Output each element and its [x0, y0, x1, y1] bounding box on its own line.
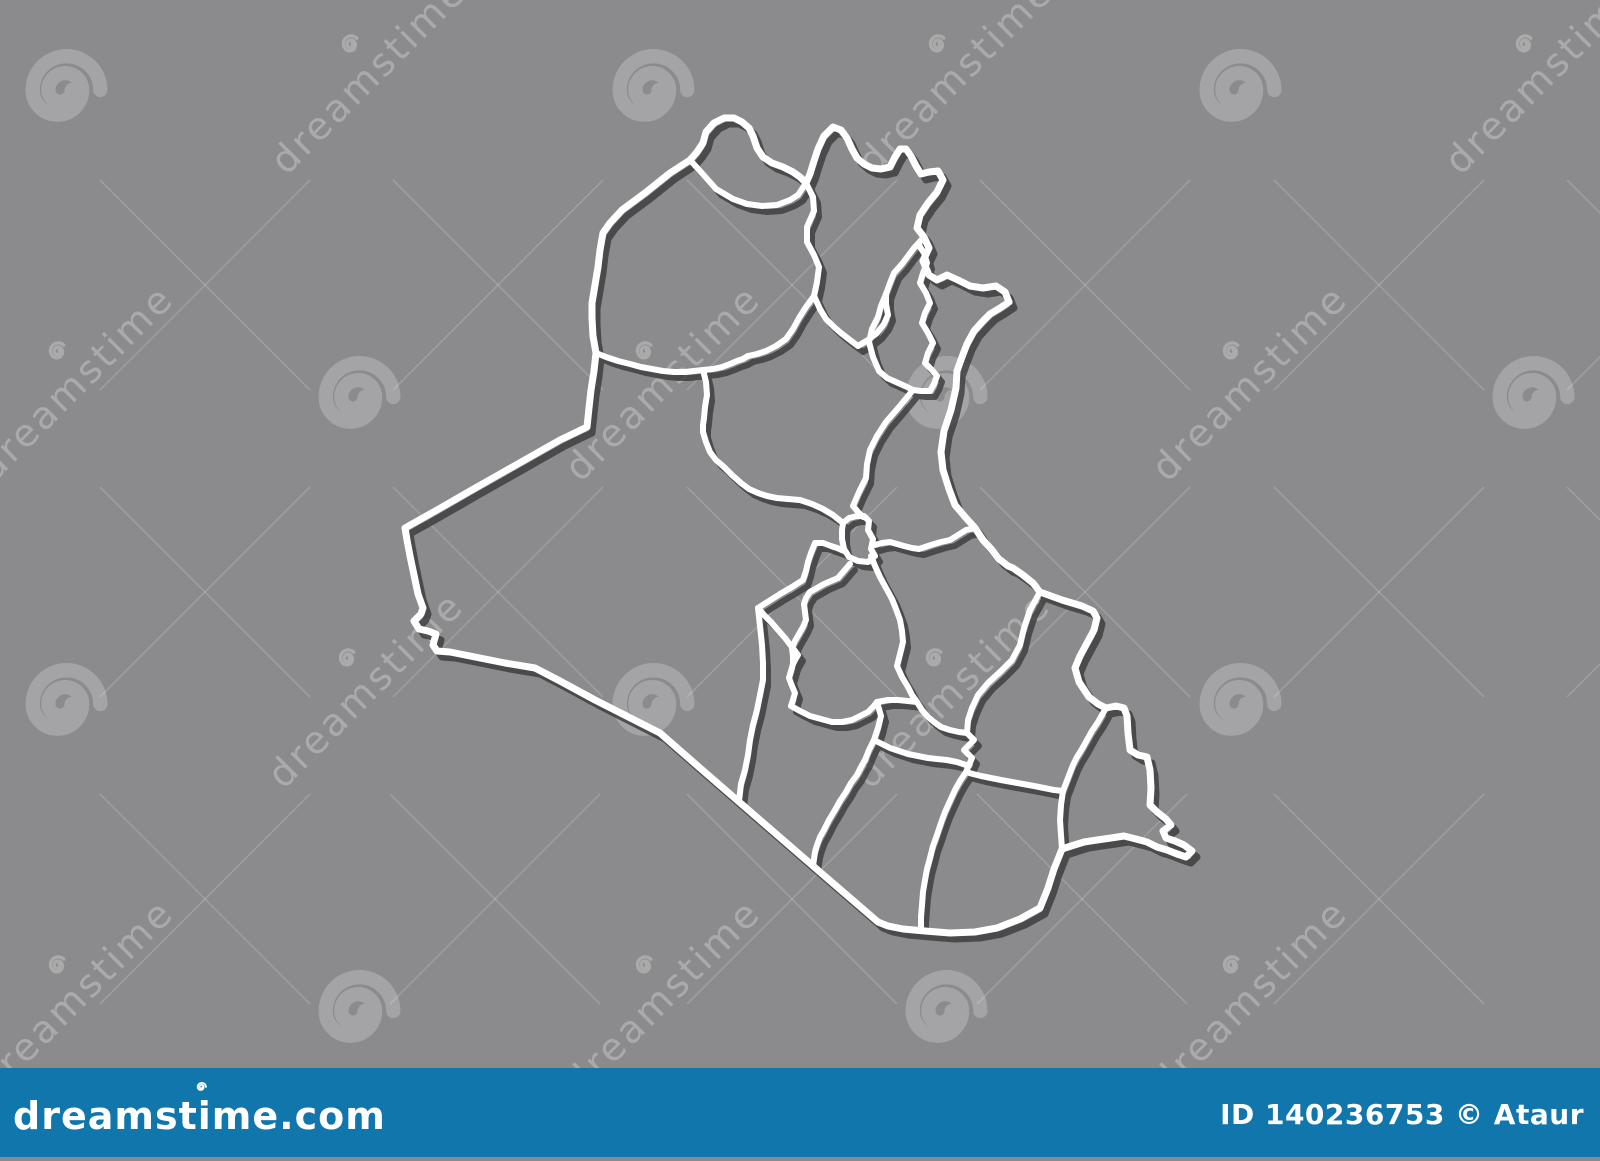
watermark-small-spiral-icon [1221, 340, 1242, 361]
logo-spiral-icon [188, 1074, 214, 1100]
svg-text:dreamstime: dreamstime [556, 276, 770, 490]
watermark-text: dreamstime [1128, 261, 1356, 489]
watermark-text: dreamstime [247, 0, 475, 183]
iraq-map-outline [405, 118, 1192, 933]
watermark-small-spiral-icon [337, 647, 358, 668]
watermark-spiral-icon [326, 363, 394, 422]
watermark-small-spiral-icon [1514, 33, 1535, 54]
watermark-line [1567, 180, 1600, 390]
watermark-line [1567, 487, 1600, 697]
watermark-small-spiral-icon [1221, 954, 1242, 975]
footer-bar: dreamstime.com ID 140236753 © Ataur [0, 1068, 1600, 1157]
svg-text:dreamstime: dreamstime [0, 276, 183, 490]
svg-text:dreamstime: dreamstime [259, 583, 473, 797]
scene-svg: dreamstimedreamstimedreamstimedreamstime… [0, 0, 1600, 1157]
watermark-text: dreamstime [244, 568, 472, 796]
watermark-small-spiral-icon [924, 647, 945, 668]
watermark-spiral-icon [1207, 56, 1275, 114]
watermark-spiral-icon [1500, 363, 1568, 422]
watermark-small-spiral-icon [47, 340, 68, 361]
watermark-small-spiral-icon [634, 340, 655, 361]
svg-text:dreamstime: dreamstime [1143, 276, 1357, 490]
watermark-text: dreamstime [834, 0, 1062, 183]
watermark-spiral-icon [326, 977, 394, 1035]
svg-text:dreamstime: dreamstime [849, 0, 1063, 183]
watermark-small-spiral-icon [47, 954, 68, 975]
dreamstime-logo: dreamstime.com [13, 1094, 386, 1138]
watermark-spiral-icon [620, 56, 688, 114]
watermark-spiral-icon [33, 56, 101, 114]
watermark-line [1567, 180, 1600, 390]
watermark-spiral-icon [33, 670, 101, 729]
watermark-small-spiral-icon [340, 33, 361, 54]
watermark-line [1567, 487, 1600, 697]
watermark-small-spiral-icon [927, 33, 948, 54]
watermark-text: dreamstime [0, 261, 183, 489]
svg-text:dreamstime: dreamstime [262, 0, 476, 183]
watermark-text: dreamstime [1421, 0, 1600, 183]
svg-text:dreamstime: dreamstime [1436, 0, 1600, 183]
image-credit: ID 140236753 © Ataur [1220, 1098, 1584, 1131]
watermark-spiral-icon [913, 977, 981, 1035]
map-shadow [410, 124, 1197, 939]
stock-image-canvas: dreamstimedreamstimedreamstimedreamstime… [0, 0, 1600, 1068]
watermark-small-spiral-icon [634, 954, 655, 975]
watermark-spiral-icon [1207, 670, 1275, 729]
